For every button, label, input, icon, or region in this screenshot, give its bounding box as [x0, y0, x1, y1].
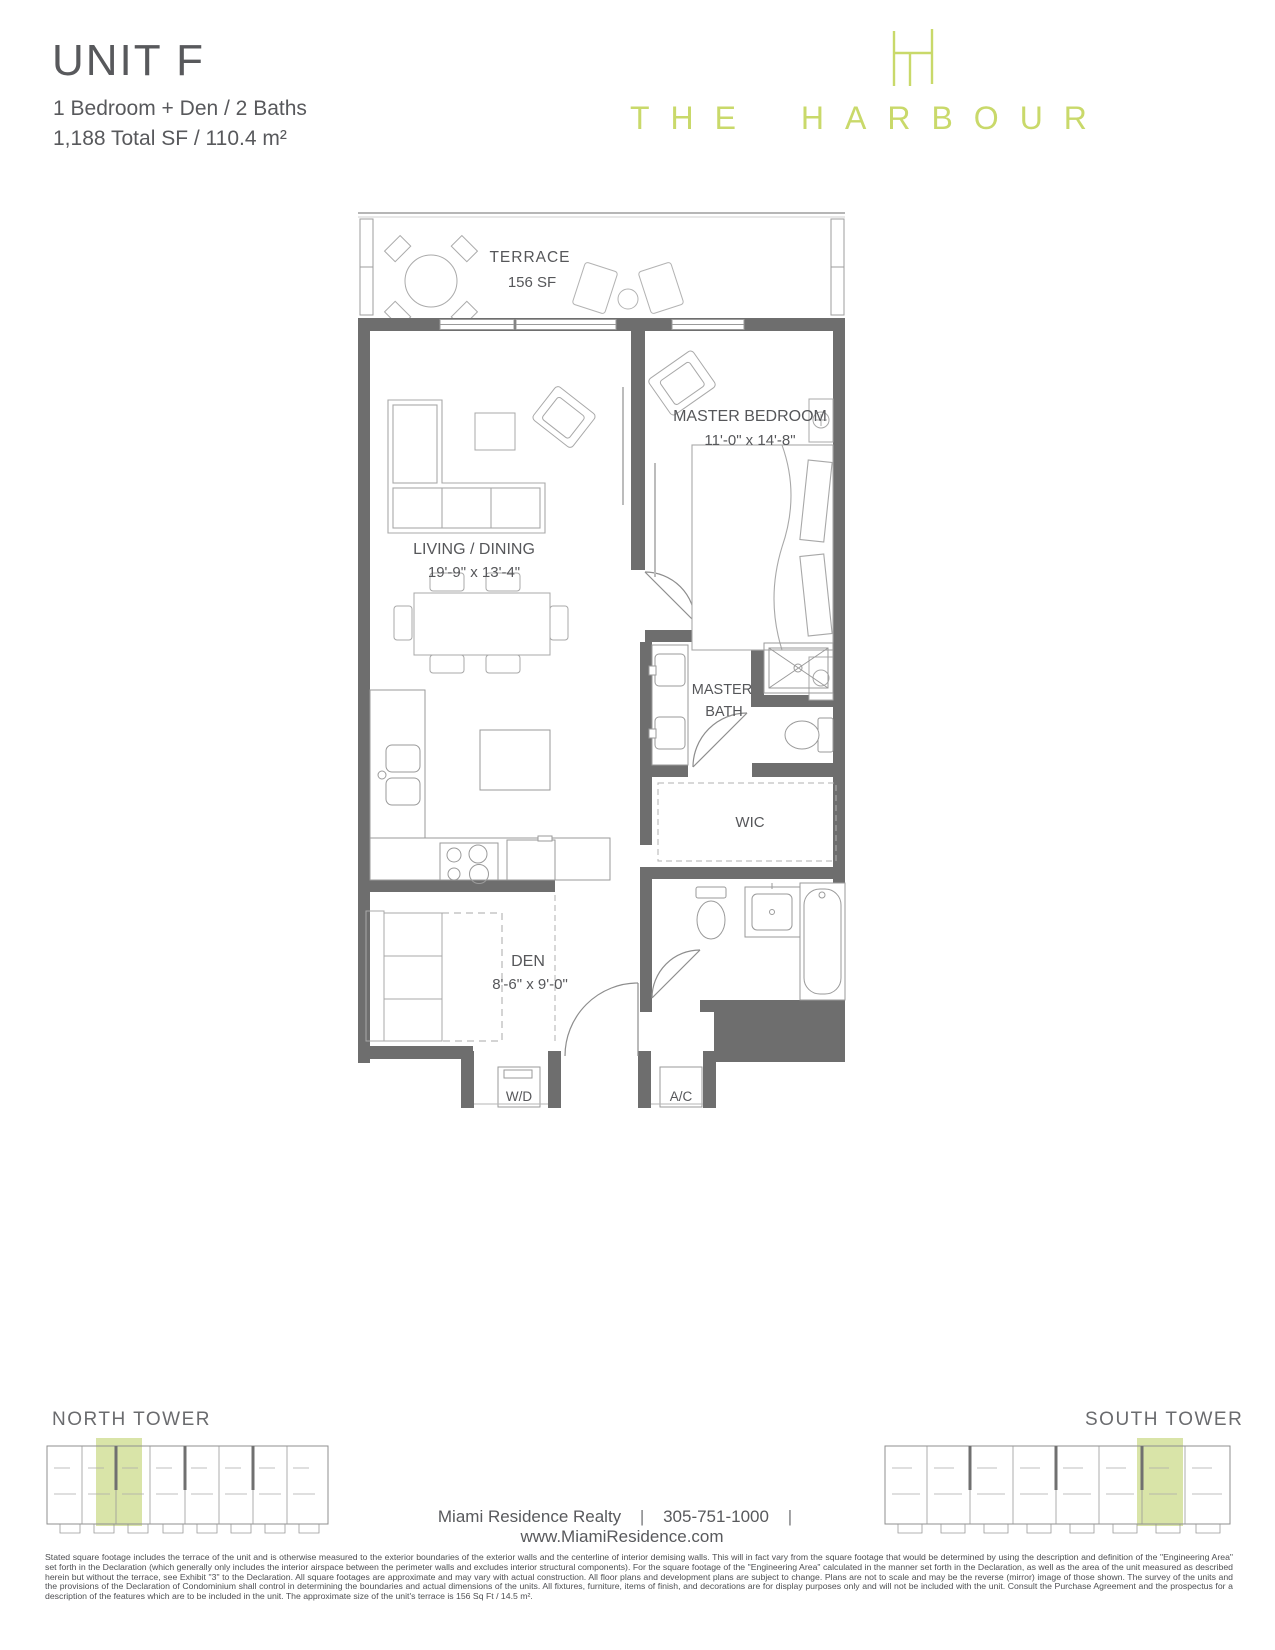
- window-icon: [440, 320, 744, 330]
- terrace-lounge-icon: [572, 262, 684, 314]
- coffee-table-icon: [475, 413, 515, 450]
- bathtub-icon: [800, 883, 845, 1000]
- floorplan: TERRACE 156 SF LIVING / DINING 19'-9" x …: [352, 205, 852, 1115]
- terrace-label: TERRACE: [489, 249, 570, 266]
- sofa-icon: [388, 400, 545, 533]
- flyer-page: UNIT F 1 Bedroom + Den / 2 Baths 1,188 T…: [0, 0, 1275, 1650]
- website-link[interactable]: www.MiamiResidence.com: [520, 1527, 723, 1546]
- terrace-area-label: 156 SF: [508, 274, 556, 291]
- master-bedroom-dims: 11'-0" x 14'-8": [704, 432, 795, 449]
- phone-number: 305-751-1000: [663, 1507, 769, 1526]
- south-tower-label: SOUTH TOWER: [1085, 1409, 1243, 1431]
- wic-label: WIC: [735, 814, 764, 831]
- bath2-sink-icon: [745, 883, 800, 937]
- master-bedroom-label: MASTER BEDROOM: [673, 408, 827, 425]
- master-toilet-icon: [785, 718, 833, 752]
- south-tower-keyplan: [884, 1438, 1232, 1542]
- unit-highlight: [96, 1438, 142, 1526]
- unit-area: 1,188 Total SF / 110.4 m²: [53, 124, 307, 154]
- bedroom-chair-icon: [647, 349, 716, 416]
- unit-summary: 1 Bedroom + Den / 2 Baths 1,188 Total SF…: [53, 94, 307, 154]
- harbour-monogram-icon: [858, 26, 968, 90]
- ac-label: A/C: [670, 1089, 693, 1104]
- page-title: UNIT F: [52, 36, 205, 86]
- living-dining-label: LIVING / DINING: [413, 541, 535, 558]
- vanity-icon: [649, 645, 688, 765]
- dining-set-icon: [394, 573, 568, 673]
- north-tower-label: NORTH TOWER: [52, 1409, 211, 1431]
- separator: |: [788, 1507, 792, 1526]
- master-bath-label-2: BATH: [705, 704, 743, 720]
- kitchen-sink-icon: [378, 745, 420, 805]
- den-label: DEN: [511, 953, 545, 970]
- kitchen-appliance-icon: [507, 836, 555, 880]
- legal-disclaimer: Stated square footage includes the terra…: [45, 1553, 1233, 1602]
- bed-icon: [692, 445, 833, 650]
- bath2-toilet-icon: [696, 887, 726, 939]
- terrace-table-icon: [385, 236, 478, 328]
- north-tower-keyplan: [46, 1438, 330, 1542]
- harbour-wordmark: THE HARBOUR: [630, 100, 1175, 137]
- den-dims: 8'-6" x 9'-0": [492, 976, 568, 993]
- accent-chair-icon: [531, 385, 596, 449]
- den-sofa-icon: [366, 911, 502, 1041]
- unit-highlight: [1137, 1438, 1183, 1526]
- separator: |: [640, 1507, 644, 1526]
- realty-name: Miami Residence Realty: [438, 1507, 621, 1526]
- living-dining-dims: 19'-9" x 13'-4": [428, 564, 520, 581]
- cooktop-icon: [440, 843, 498, 884]
- washer-dryer-label: W/D: [506, 1089, 532, 1104]
- unit-config: 1 Bedroom + Den / 2 Baths: [53, 94, 307, 124]
- contact-bar: Miami Residence Realty | 305-751-1000 | …: [352, 1507, 892, 1547]
- master-bath-label-1: MASTER: [692, 682, 752, 698]
